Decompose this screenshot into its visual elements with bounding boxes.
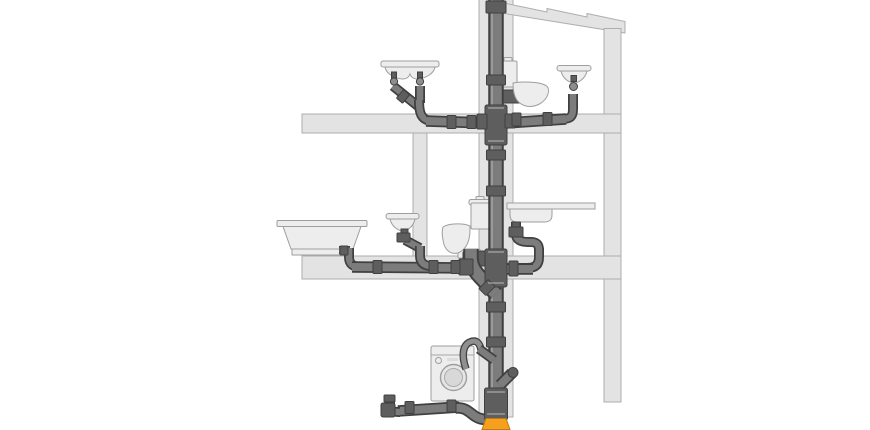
pipe-socket <box>373 261 382 274</box>
machine-knob <box>436 358 442 364</box>
spare-branch-cap <box>508 368 518 378</box>
pipe-socket <box>467 116 476 129</box>
upper-junction-left-socket <box>477 114 487 129</box>
basin-top <box>557 66 591 72</box>
upper-double-washbasin <box>381 61 439 79</box>
upper-toilet <box>500 58 549 107</box>
door-glass <box>445 369 463 387</box>
basin-top <box>386 214 419 220</box>
sink-bottle-trap <box>509 227 523 237</box>
middle-junction-right-socket <box>509 261 518 276</box>
pipe-socket <box>512 113 521 126</box>
drain-valve <box>390 78 397 85</box>
underground-transition-adapter <box>482 419 510 430</box>
stack-base-fitting <box>485 388 508 420</box>
machine-buttons <box>447 358 458 361</box>
upper-junction-body <box>485 105 507 145</box>
partition-wall <box>413 133 427 256</box>
basin-bottle-trap <box>397 233 410 242</box>
stack-coupling <box>487 302 506 312</box>
stack-coupling <box>487 186 506 196</box>
drain-valve <box>416 78 423 85</box>
tub-trap-coupling <box>340 246 348 255</box>
pipe-socket <box>451 261 460 274</box>
stack-coupling <box>486 1 506 13</box>
access-end-fitting <box>381 403 395 417</box>
stack-coupling <box>487 75 506 85</box>
right-exterior-wall <box>604 29 621 403</box>
tub-rim <box>277 221 367 227</box>
stack-coupling <box>487 337 506 347</box>
sink-basin <box>510 209 552 222</box>
drain-valve <box>570 83 578 91</box>
right-basin-valve <box>570 76 578 91</box>
pipe-socket <box>405 402 414 414</box>
valve-stub <box>571 76 577 82</box>
valve-stub <box>418 72 423 78</box>
cistern <box>471 203 489 229</box>
valve-stub <box>392 72 397 78</box>
pipe-socket <box>447 116 456 129</box>
counter-top <box>507 203 595 209</box>
basin-top <box>381 61 439 67</box>
tub-body <box>283 227 361 250</box>
washing-machine <box>431 346 474 401</box>
middle-junction-left-socket <box>459 259 473 275</box>
pipe-socket <box>447 400 456 412</box>
drainage-diagram-canvas <box>0 0 870 430</box>
pipe-socket <box>429 261 438 274</box>
access-cap <box>384 395 395 402</box>
fixtures <box>277 58 595 402</box>
pipe-socket <box>543 113 552 126</box>
stack-coupling <box>487 150 506 160</box>
plumbing-diagram <box>0 0 870 430</box>
kitchen-sink <box>507 203 595 222</box>
